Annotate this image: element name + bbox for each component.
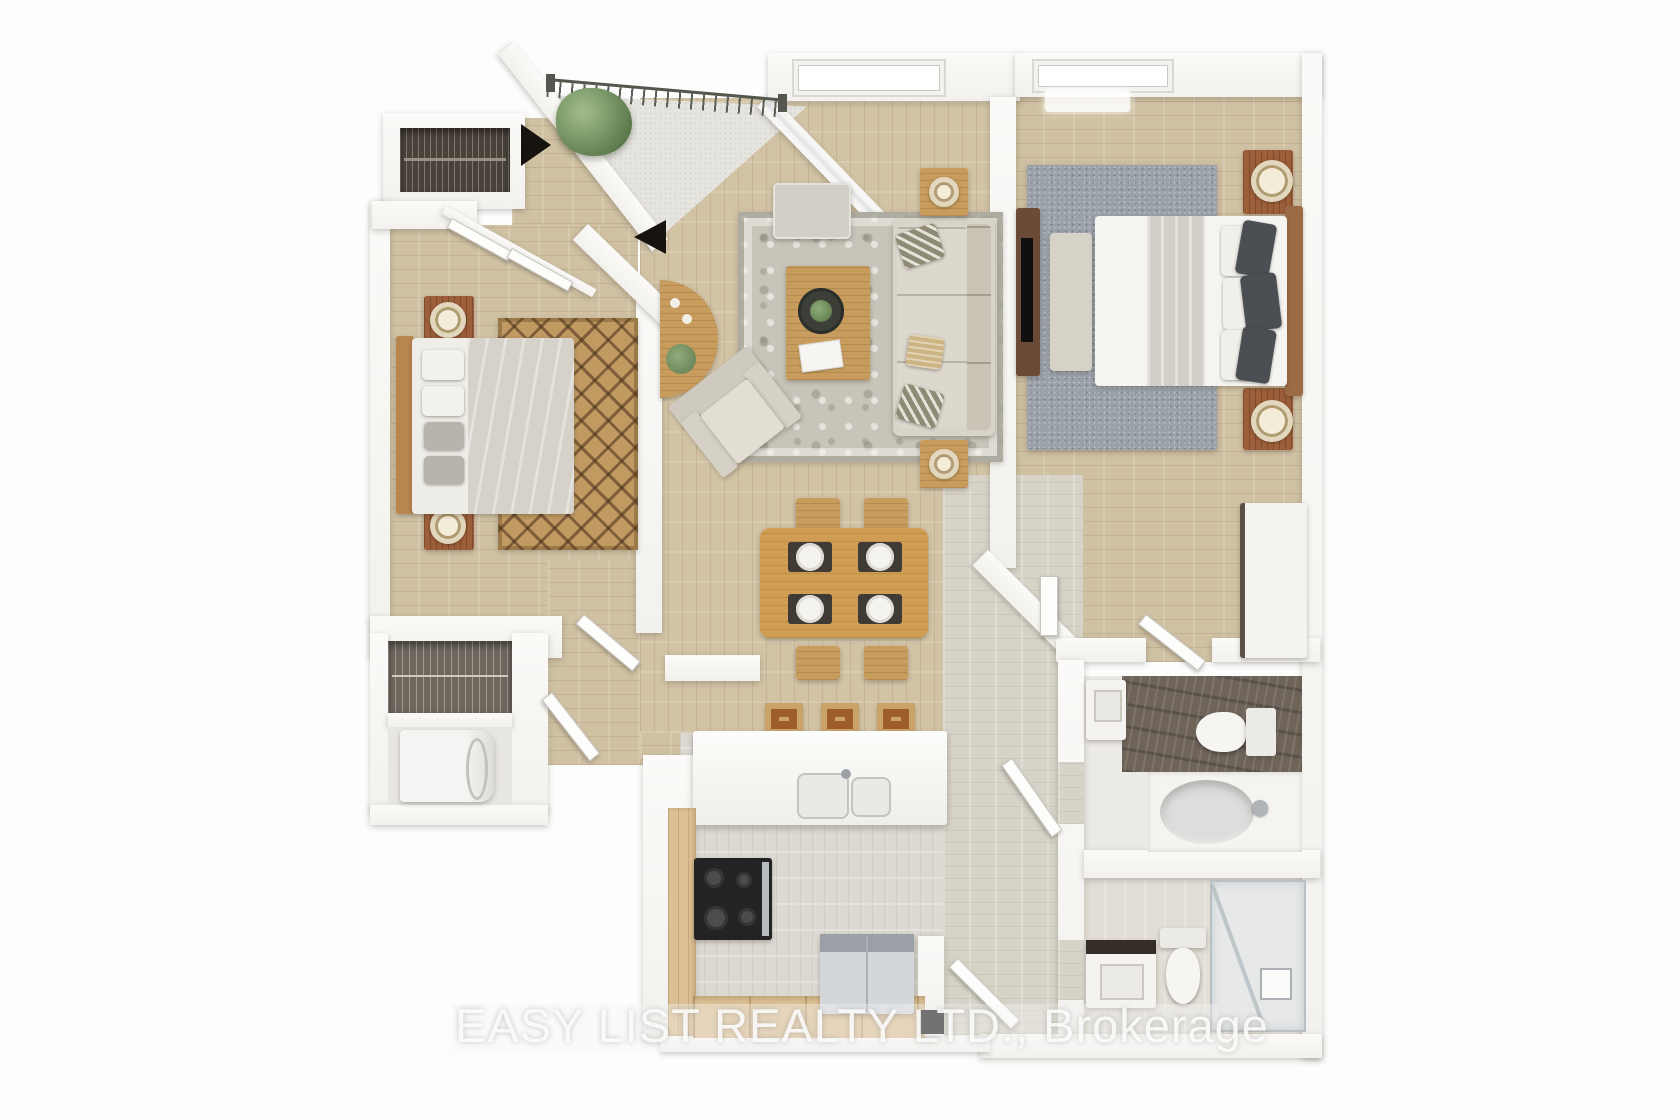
burner (704, 868, 724, 888)
watermark-text: EASY LIST REALTY LTD., Brokerage (455, 1000, 1220, 1052)
laundry-right-wall (512, 633, 548, 813)
faucet (841, 769, 851, 779)
primary-nightstand-bottom (1243, 388, 1293, 450)
ensuite-bathroom2-wall (1084, 850, 1320, 878)
ensuite-sink (1094, 690, 1122, 722)
console-cup (670, 298, 680, 308)
sink-basin-small (851, 777, 891, 817)
primary-lamp-top (1251, 160, 1293, 202)
plate (796, 543, 824, 571)
closet-rod (404, 158, 506, 161)
dining-chair (864, 646, 908, 680)
console-plant (666, 344, 696, 374)
bedroom1-pillow (424, 422, 464, 450)
plate (866, 595, 894, 623)
wire-shelf (392, 675, 508, 677)
bedroom1-pillow (424, 456, 464, 484)
tub-faucet (1252, 800, 1268, 816)
shower-fixture (1260, 968, 1292, 1000)
bedroom1-pillow (422, 350, 464, 380)
living-window (792, 59, 946, 97)
coffee-table (786, 266, 870, 380)
end-table-top (920, 168, 968, 216)
washer-door (466, 738, 488, 800)
burner (736, 872, 752, 888)
tv (1021, 238, 1033, 342)
placemat (858, 542, 902, 572)
end-table-bottom (920, 440, 968, 488)
placemat (788, 594, 832, 624)
plate (796, 595, 824, 623)
laundry-left-wall (370, 633, 388, 813)
bathroom2-toilet-bowl (1166, 948, 1200, 1004)
bathroom2-sink (1100, 964, 1144, 1000)
primary-bottom-wall-a (1056, 638, 1146, 662)
dining-chair (796, 646, 840, 680)
bedroom1-duvet (468, 338, 574, 514)
bathroom2-counter (1086, 940, 1156, 954)
primary-wardrobe (1240, 503, 1307, 658)
primary-throw-blanket (1147, 216, 1205, 386)
placemat (858, 594, 902, 624)
primary-lamp-bottom (1251, 400, 1293, 442)
bed-bench (1050, 233, 1092, 371)
tv-console (1016, 208, 1040, 376)
range-cooktop (694, 858, 772, 940)
kitchen-top-wall-stub (665, 655, 760, 681)
laundry-mid-wall (388, 713, 512, 727)
primary-bed (1095, 216, 1287, 386)
primary-ceiling-light (1045, 90, 1130, 112)
sink-basin-large (797, 773, 849, 819)
magazine (798, 339, 843, 373)
railing-post-right (778, 94, 787, 112)
dining-chair (864, 498, 908, 532)
sofa-pillow-tan (905, 334, 945, 371)
bathroom2-toilet-tank (1160, 928, 1206, 948)
range-control-strip (762, 862, 769, 936)
bedroom1-left-wall (370, 201, 390, 633)
sofa (893, 218, 995, 436)
sofa-back-cushions (967, 224, 991, 430)
ensuite-door-opening (1058, 762, 1084, 824)
bathroom2-door-opening (1058, 940, 1084, 1000)
decor-tray (798, 288, 844, 334)
potted-plant (556, 88, 632, 156)
ottoman (773, 183, 851, 239)
laundry-bottom-wall (370, 805, 548, 825)
ensuite-toilet-tank (1246, 708, 1276, 756)
bedroom1-living-wall (636, 295, 662, 633)
candle-bottom (929, 449, 959, 479)
bedroom1-bed (412, 338, 574, 514)
bathroom2-vanity (1086, 940, 1156, 1008)
bathtub (1160, 780, 1254, 844)
primary-door (1040, 576, 1058, 636)
tray-plant (810, 300, 832, 322)
primary-headboard (1285, 206, 1303, 396)
plate (866, 543, 894, 571)
ensuite-vanity (1086, 680, 1126, 740)
primary-pillow-charcoal (1240, 272, 1283, 332)
bathtub-deck (1148, 772, 1302, 852)
primary-window (1032, 59, 1174, 93)
wire-shelf-closet (388, 641, 512, 713)
burner (704, 906, 728, 930)
placemat (788, 542, 832, 572)
dining-chair (796, 498, 840, 532)
console-cup (682, 314, 692, 324)
bedroom1-lamp-top (430, 302, 466, 338)
washer (400, 730, 494, 802)
floor-plan: EASY LIST REALTY LTD., Brokerage (0, 0, 1680, 1120)
dining-table (760, 528, 928, 638)
primary-pillow-charcoal (1235, 326, 1277, 385)
candle-top (929, 177, 959, 207)
burner (738, 908, 756, 926)
kitchen-island (693, 731, 947, 825)
bedroom1-pillow (422, 386, 464, 416)
ensuite-toilet-bowl (1196, 712, 1246, 752)
primary-nightstand-top (1243, 150, 1293, 214)
entry-closet-interior (400, 128, 510, 192)
railing-post-left (546, 74, 555, 92)
